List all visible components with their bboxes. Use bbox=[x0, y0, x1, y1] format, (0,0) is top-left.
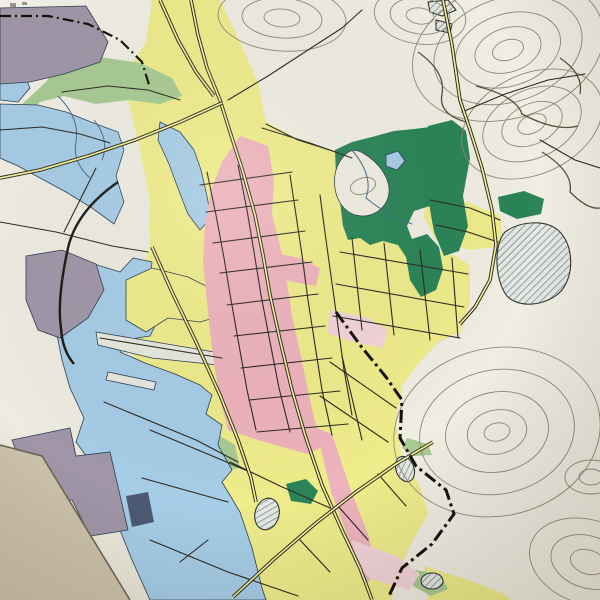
map-photo bbox=[0, 0, 600, 600]
city-map-canvas bbox=[0, 0, 600, 600]
photo-vignette bbox=[0, 0, 600, 600]
